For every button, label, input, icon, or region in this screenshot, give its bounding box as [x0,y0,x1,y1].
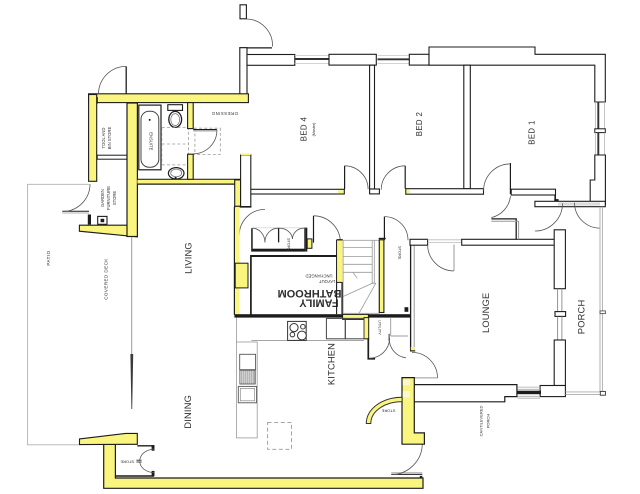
svg-text:KITCHEN: KITCHEN [327,343,337,385]
svg-text:TOOL AND: TOOL AND [101,128,106,149]
svg-text:BED 2: BED 2 [415,112,424,137]
svg-text:GARDEN: GARDEN [100,189,105,207]
svg-text:COVERED DECK: COVERED DECK [104,258,109,300]
svg-text:STORE: STORE [381,409,395,414]
svg-text:PORCH: PORCH [577,300,587,335]
svg-text:DRESSING: DRESSING [211,111,238,116]
svg-text:ENSUITE: ENSUITE [149,132,154,150]
svg-text:STORE: STORE [112,191,117,206]
svg-text:STORE: STORE [397,246,402,260]
svg-text:BED 1: BED 1 [528,120,537,145]
svg-text:BATHROOM: BATHROOM [278,287,342,299]
svg-text:UTILITY: UTILITY [377,320,382,335]
svg-text:LOUNGE: LOUNGE [481,293,491,333]
svg-text:STORE: STORE [120,459,134,464]
svg-text:LIVING: LIVING [184,242,194,274]
svg-text:BED 4: BED 4 [300,116,309,141]
svg-text:(Master): (Master) [312,123,316,137]
svg-text:UNCHANGED: UNCHANGED [306,274,333,279]
svg-text:STORE: STORE [286,238,291,252]
svg-text:PORCH: PORCH [486,414,491,429]
svg-text:CANTILEVERED: CANTILEVERED [479,406,484,437]
svg-text:PATIO: PATIO [46,250,51,265]
svg-text:DINING: DINING [183,395,193,429]
svg-text:BIN STORE: BIN STORE [107,127,112,150]
svg-text:FURNITURE: FURNITURE [106,186,111,210]
